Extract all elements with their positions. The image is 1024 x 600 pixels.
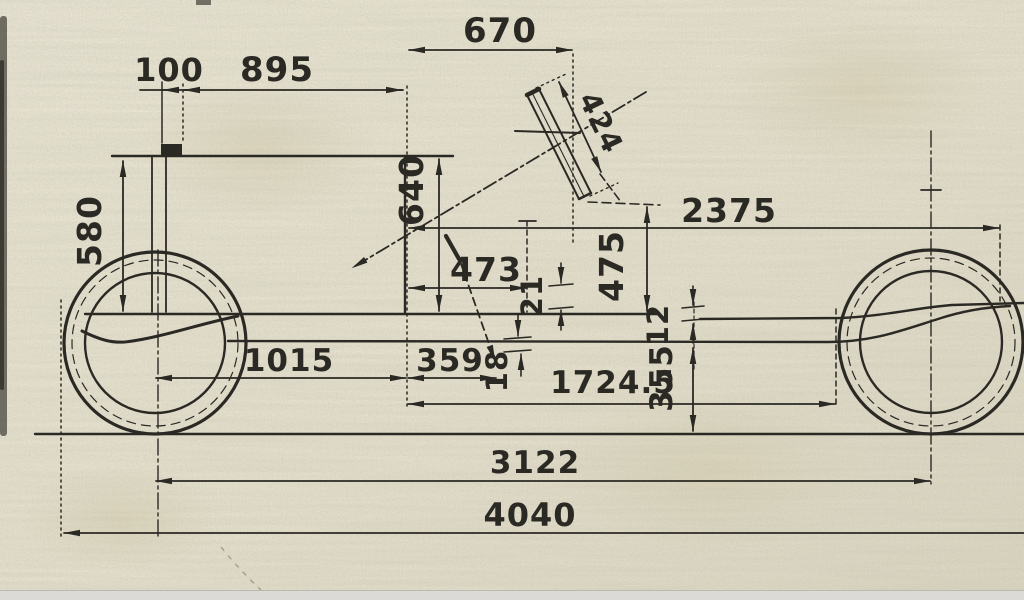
dim-label-670: 670 [463, 11, 537, 51]
dim-label-580: 580 [70, 195, 109, 267]
chassis-drawing-svg: 100 895 670 580 640 424 473 2375 475 21 … [0, 0, 1024, 600]
dim-label-475: 475 [592, 230, 631, 302]
frame-bracket [161, 144, 182, 155]
scan-edge-left-dark [0, 60, 4, 390]
dim-label-640: 640 [392, 154, 431, 226]
dim-label-895: 895 [240, 50, 314, 90]
dim-label-359: 359 [416, 343, 484, 379]
dim-label-473: 473 [450, 250, 522, 289]
dim-label-3122: 3122 [490, 445, 580, 481]
dim-label-355: 355 [644, 344, 680, 412]
scanned-chassis-drawing: 100 895 670 580 640 424 473 2375 475 21 … [0, 0, 1024, 600]
dim-label-1015: 1015 [244, 343, 334, 379]
dim-label-12: 12 [641, 304, 675, 346]
dim-label-18: 18 [480, 350, 514, 392]
dim-label-21: 21 [515, 275, 549, 317]
dim-label-2375: 2375 [681, 191, 777, 230]
scan-mark-top [196, 0, 211, 5]
dim-label-4040: 4040 [483, 496, 576, 534]
dim-label-100: 100 [134, 51, 204, 89]
scan-edge-bottom [0, 591, 1024, 600]
